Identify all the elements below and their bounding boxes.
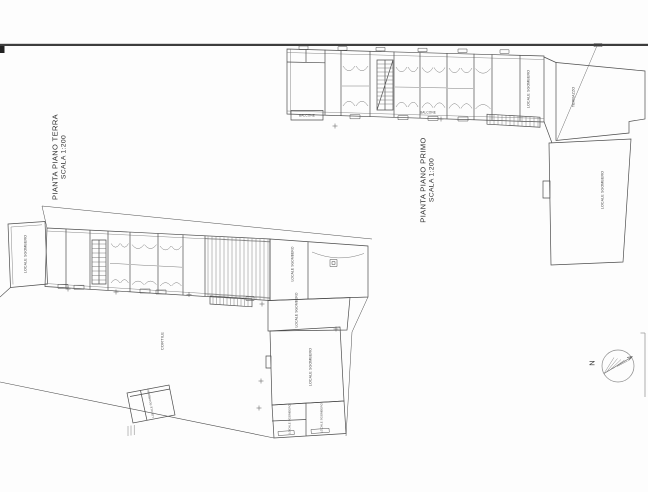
room-label: LOCALE SGOMBERO (321, 403, 324, 433)
room-label: LOCALE SGOMBERO (295, 292, 298, 327)
room-label: BALCONE (420, 111, 436, 114)
room-label: BALCONE (299, 114, 315, 117)
room-label: LOCALE SGOMBERO (309, 348, 313, 386)
room-label: TERRAZZO (572, 87, 576, 107)
room-label: LOCALE SGOMBERO (147, 388, 155, 418)
room-label: CORTILE (161, 332, 165, 350)
room-label: LOCALE SGOMBERO (291, 246, 294, 281)
room-label: LOCALE SGOMBERO (601, 171, 605, 209)
room-labels-layer: BALCONEBALCONELOCALE SGOMBEROTERRAZZOLOC… (0, 0, 648, 492)
room-label: LOCALE SGOMBERO (289, 404, 292, 434)
room-label: LOCALE SGOMBERO (527, 70, 531, 108)
room-label: LOCALE SGOMBERO (24, 235, 28, 273)
scanned-floorplan-sheet: PIANTA PIANO TERRA SCALA 1:200 PIANTA PI… (0, 0, 648, 492)
